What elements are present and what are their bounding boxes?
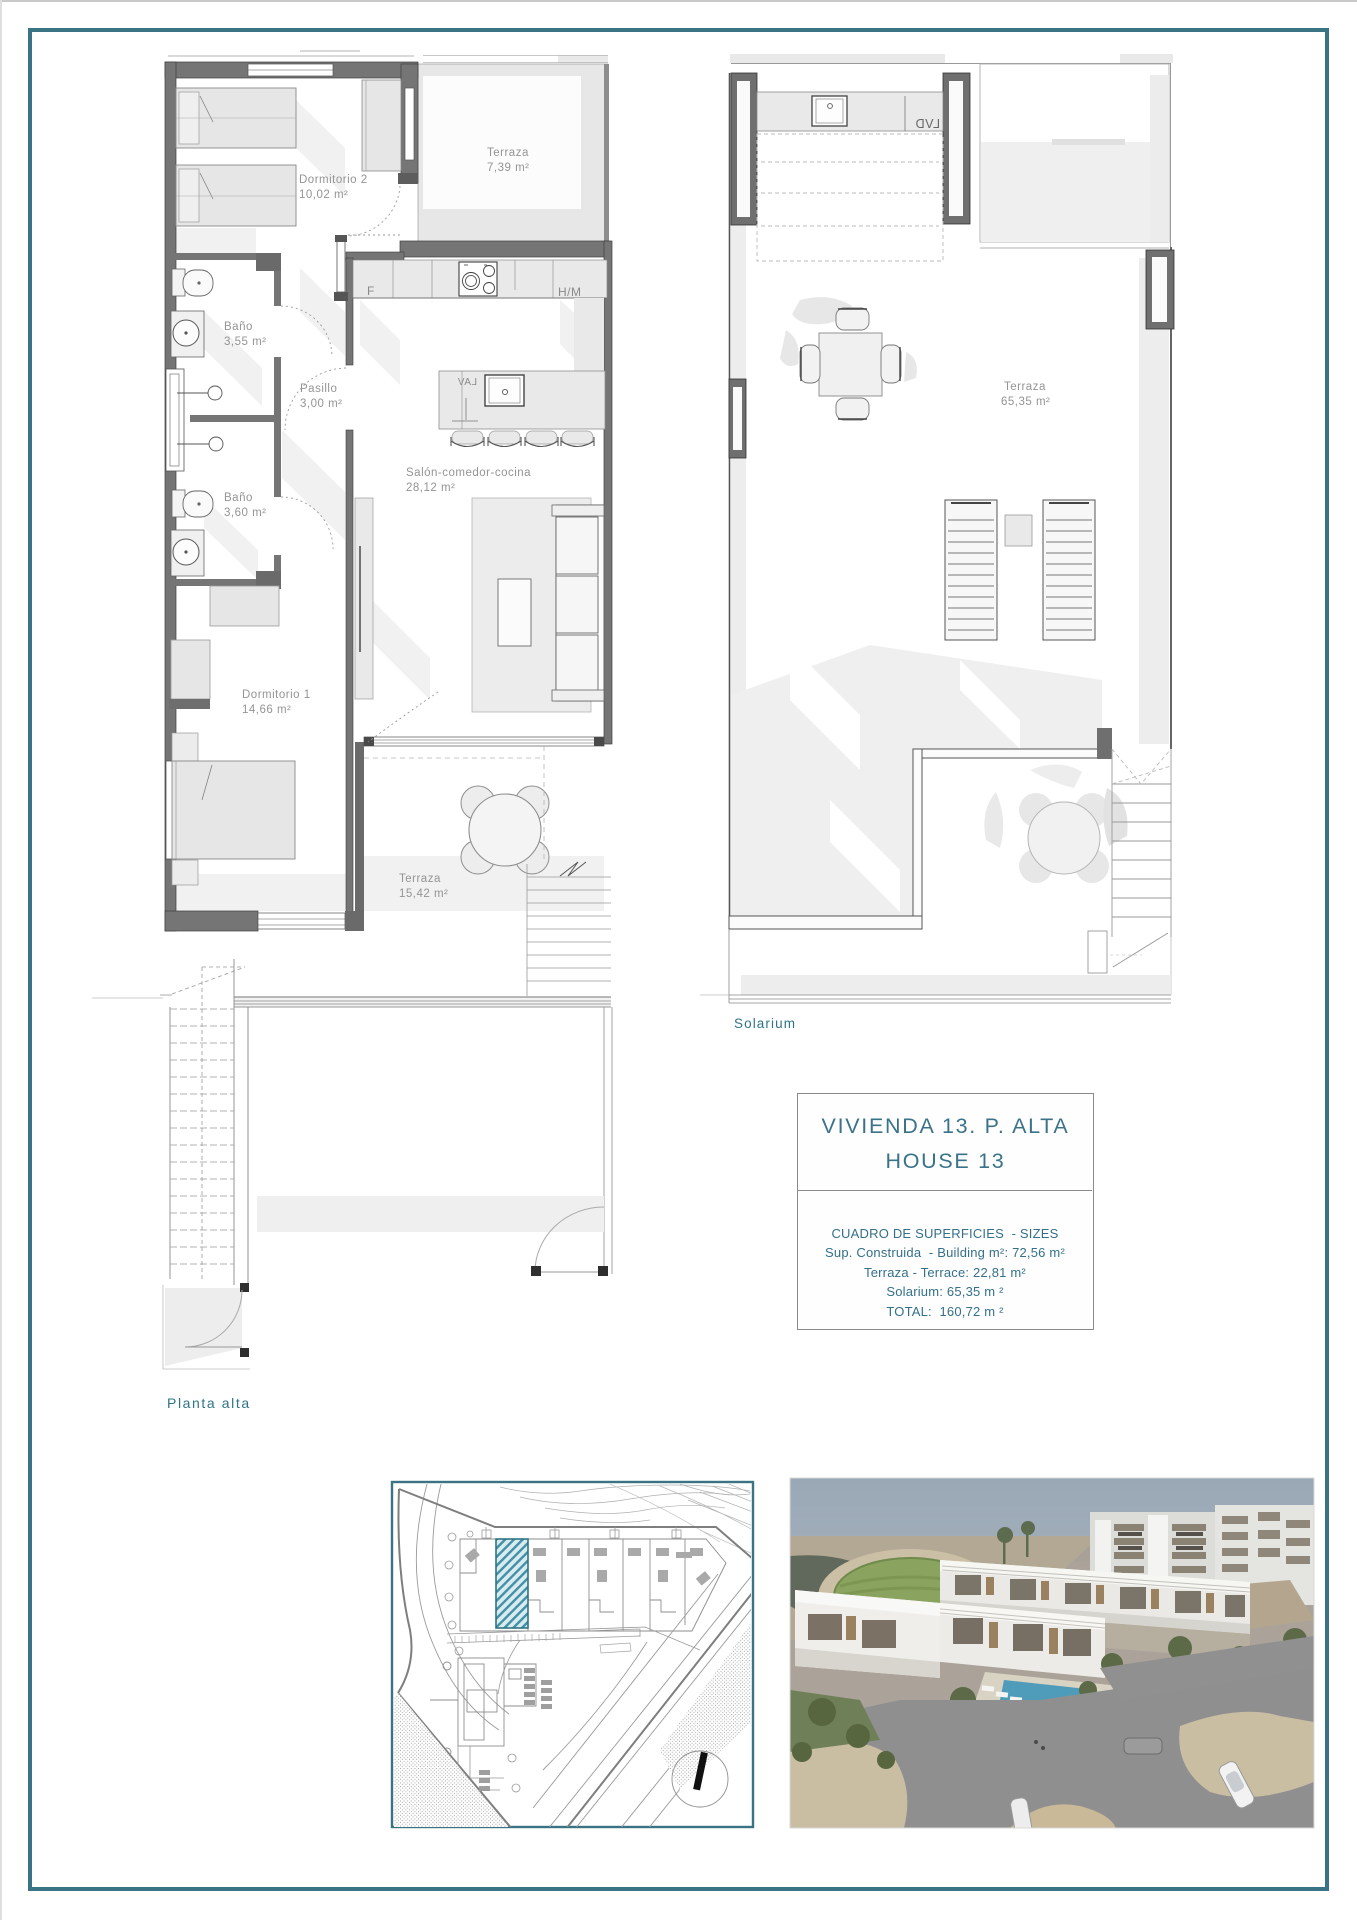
svg-text:3,60 m²: 3,60 m² [224, 507, 267, 519]
svg-text:H/M: H/M [558, 285, 582, 299]
svg-text:Pasillo: Pasillo [300, 383, 337, 395]
svg-text:3,00 m²: 3,00 m² [300, 398, 343, 410]
svg-text:Terraza: Terraza [487, 147, 529, 159]
svg-text:3,55 m²: 3,55 m² [224, 336, 267, 348]
svg-text:10,02 m²: 10,02 m² [299, 189, 348, 201]
svg-text:LVD: LVD [915, 117, 940, 131]
svg-text:Terraza: Terraza [1004, 381, 1046, 393]
svg-text:15,42 m²: 15,42 m² [399, 888, 448, 900]
svg-text:Baño: Baño [224, 492, 253, 504]
svg-text:Terraza: Terraza [399, 873, 441, 885]
svg-text:Dormitorio 1: Dormitorio 1 [242, 689, 311, 701]
svg-text:Dormitorio 2: Dormitorio 2 [299, 174, 368, 186]
svg-text:F: F [367, 284, 375, 298]
svg-text:14,66 m²: 14,66 m² [242, 704, 291, 716]
svg-text:Salón-comedor-cocina: Salón-comedor-cocina [406, 467, 531, 479]
svg-text:28,12 m²: 28,12 m² [406, 482, 455, 494]
svg-text:65,35 m²: 65,35 m² [1001, 396, 1050, 408]
svg-text:Baño: Baño [224, 321, 253, 333]
svg-text:7,39 m²: 7,39 m² [487, 162, 530, 174]
svg-text:LAV: LAV [457, 377, 477, 388]
